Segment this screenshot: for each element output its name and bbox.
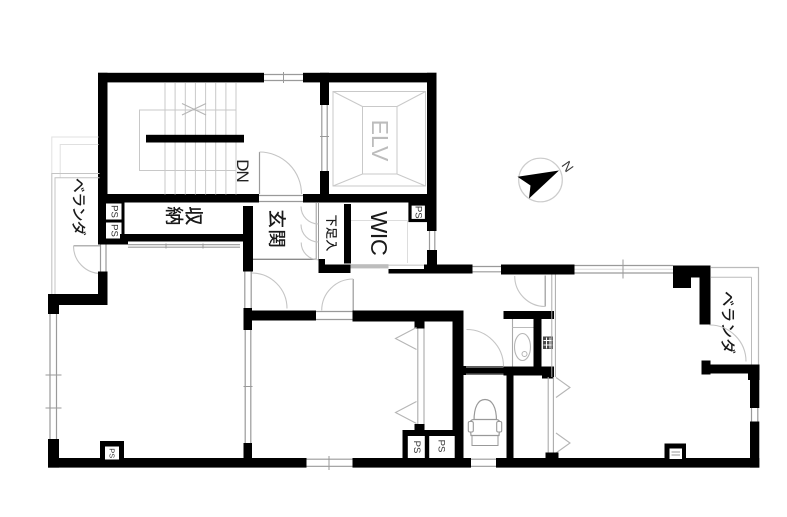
svg-text:DN: DN	[233, 159, 252, 182]
svg-text:PS: PS	[108, 205, 119, 218]
svg-text:PS: PS	[411, 441, 422, 454]
svg-text:ELV: ELV	[367, 120, 393, 162]
svg-text:PS: PS	[108, 224, 119, 237]
svg-text:WIC: WIC	[366, 211, 392, 256]
svg-text:PS: PS	[436, 440, 447, 453]
svg-text:PS: PS	[108, 448, 117, 458]
svg-text:PS: PS	[413, 206, 424, 219]
